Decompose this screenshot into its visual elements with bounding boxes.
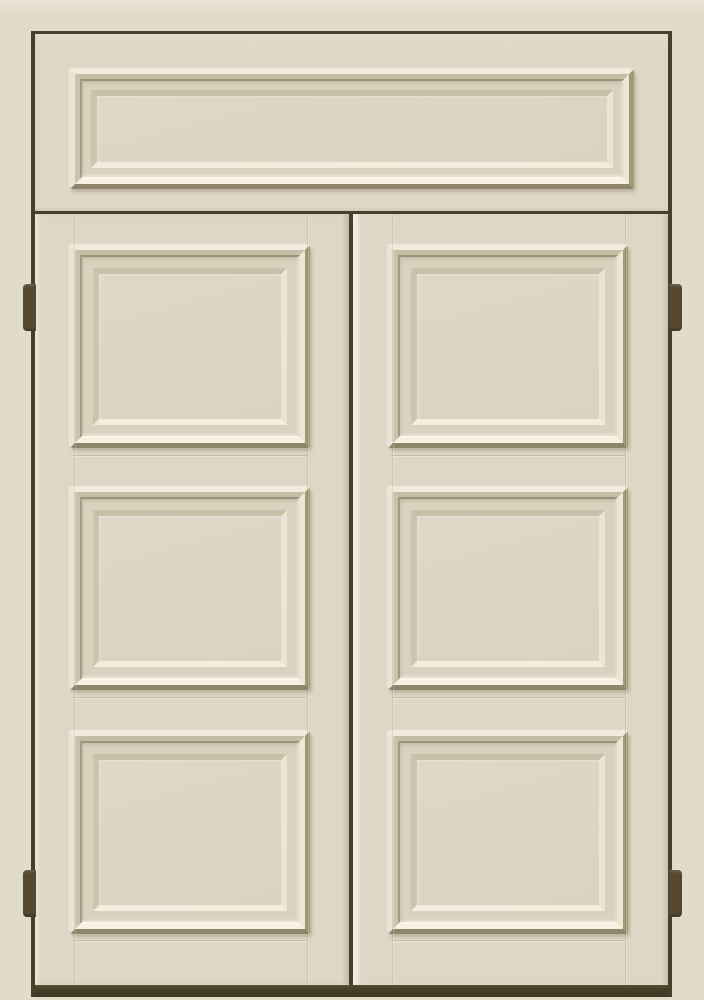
panel-molding-outer [70,731,310,934]
left-door-leaf [35,214,349,985]
raised-panel [70,731,310,934]
panel-molding-slope [75,736,305,929]
panel-field [93,268,287,425]
transom-panel [70,69,634,189]
panel-molding-outer [70,245,310,448]
panel-field [93,754,287,911]
panel-recess [400,743,616,922]
right-door-leaf [356,214,668,985]
raised-panel [388,245,628,448]
rail-seam [391,940,625,941]
hinge-bottom-right [669,870,682,917]
panel-molding-crease [80,497,300,680]
frame-outline-left [31,31,35,997]
background-wall [0,0,704,1000]
panel-field [93,510,287,667]
panel-molding-outer [388,487,628,690]
panel-molding-crease [398,741,618,924]
panel-recess [82,81,622,177]
stile-seam [307,214,308,985]
panel-field [411,510,605,667]
panel-molding-crease [80,255,300,438]
hinge-top-right [669,284,682,331]
panel-molding-outer [388,245,628,448]
stile-seam [392,214,393,985]
panel-molding-outer [70,487,310,690]
rail-seam [73,940,307,941]
panel-recess [400,257,616,436]
hinge-bottom-left [23,870,36,917]
rail-seam [73,455,307,456]
panel-molding-slope [393,250,623,443]
door-meeting-gap-highlight [353,214,356,985]
threshold [35,985,668,997]
stile-seam [625,214,626,985]
panel-field [91,90,613,168]
stile-seam [74,214,75,985]
raised-panel [70,487,310,690]
rail-seam [391,455,625,456]
frame-outline-right [668,31,672,997]
frame-outline-top [31,31,672,34]
panel-recess [82,743,298,922]
hinge-top-left [23,284,36,331]
panel-recess [82,257,298,436]
rail-seam [73,697,307,698]
panel-field [411,754,605,911]
panel-molding-slope [75,74,629,184]
panel-molding-crease [398,255,618,438]
rail-seam [391,697,625,698]
panel-recess [82,499,298,678]
raised-panel [70,245,310,448]
panel-molding-slope [75,250,305,443]
panel-molding-slope [393,492,623,685]
panel-molding-crease [80,741,300,924]
panel-molding-outer [388,731,628,934]
panel-recess [400,499,616,678]
panel-molding-crease [398,497,618,680]
raised-panel [388,731,628,934]
panel-molding-slope [393,736,623,929]
transom [35,34,668,211]
panel-molding-crease [80,79,624,179]
panel-field [411,268,605,425]
panel-molding-outer [70,69,634,189]
panel-molding-slope [75,492,305,685]
raised-panel [388,487,628,690]
